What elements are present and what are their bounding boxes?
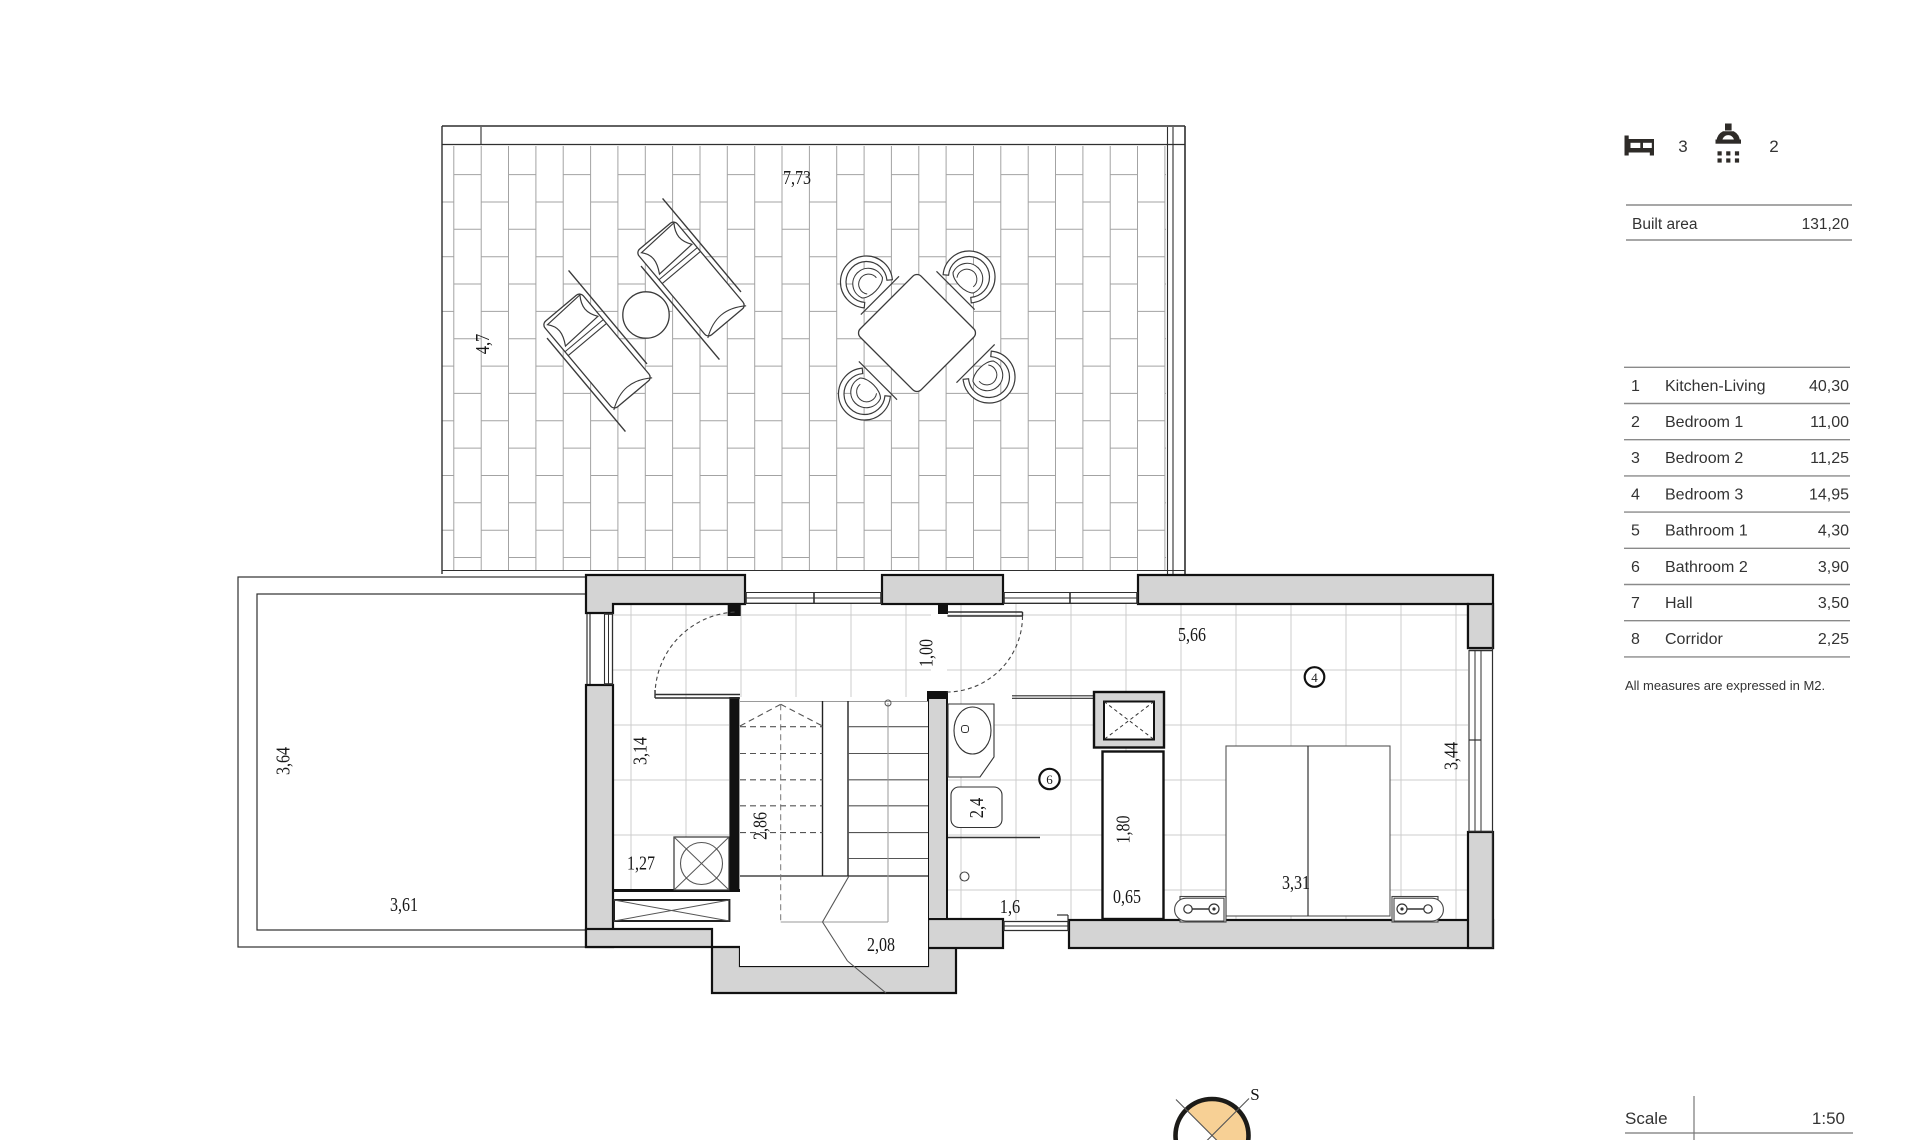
svg-text:11,25: 11,25	[1810, 450, 1849, 467]
svg-text:2,4: 2,4	[966, 798, 988, 819]
svg-text:Bathroom 1: Bathroom 1	[1665, 523, 1748, 540]
svg-text:7: 7	[1631, 595, 1640, 612]
svg-text:3,64: 3,64	[273, 747, 295, 775]
svg-text:4,7: 4,7	[472, 334, 494, 355]
svg-text:Kitchen-Living: Kitchen-Living	[1665, 378, 1766, 395]
svg-text:131,20: 131,20	[1802, 216, 1850, 233]
svg-text:2: 2	[1631, 414, 1640, 431]
svg-text:Corridor: Corridor	[1665, 631, 1723, 648]
svg-text:Bedroom 3: Bedroom 3	[1665, 486, 1743, 503]
svg-text:6: 6	[1631, 559, 1640, 576]
svg-text:Hall: Hall	[1665, 595, 1693, 612]
svg-text:3,50: 3,50	[1818, 595, 1849, 612]
svg-text:Scale: Scale	[1625, 1109, 1668, 1128]
svg-text:3,31: 3,31	[1282, 872, 1310, 894]
svg-text:3: 3	[1678, 137, 1687, 156]
svg-text:1,27: 1,27	[627, 853, 655, 875]
svg-text:1,6: 1,6	[1000, 896, 1021, 918]
svg-text:S: S	[1250, 1085, 1259, 1104]
svg-text:5,66: 5,66	[1178, 624, 1206, 646]
svg-text:5: 5	[1631, 523, 1640, 540]
svg-text:7,73: 7,73	[783, 167, 811, 189]
svg-text:3,61: 3,61	[390, 894, 418, 916]
svg-text:1,00: 1,00	[916, 639, 938, 667]
svg-text:3,14: 3,14	[630, 737, 652, 765]
svg-text:1: 1	[1631, 378, 1640, 395]
svg-text:4: 4	[1311, 670, 1318, 685]
svg-text:2,86: 2,86	[750, 812, 772, 840]
svg-text:1,80: 1,80	[1113, 816, 1135, 844]
svg-text:Built area: Built area	[1632, 216, 1698, 233]
svg-text:3,44: 3,44	[1441, 742, 1463, 770]
svg-text:1:50: 1:50	[1812, 1109, 1845, 1128]
svg-text:2,25: 2,25	[1818, 631, 1849, 648]
svg-text:2: 2	[1769, 137, 1778, 156]
svg-text:4: 4	[1631, 486, 1640, 503]
svg-text:3: 3	[1631, 450, 1640, 467]
svg-text:11,00: 11,00	[1810, 414, 1849, 431]
svg-text:Bedroom 2: Bedroom 2	[1665, 450, 1743, 467]
svg-text:2,08: 2,08	[867, 934, 895, 956]
svg-text:Bedroom 1: Bedroom 1	[1665, 414, 1743, 431]
svg-text:3,90: 3,90	[1818, 559, 1849, 576]
svg-text:4,30: 4,30	[1818, 523, 1849, 540]
svg-text:0,65: 0,65	[1113, 886, 1141, 908]
svg-text:40,30: 40,30	[1809, 378, 1849, 395]
svg-text:8: 8	[1631, 631, 1640, 648]
svg-text:6: 6	[1046, 772, 1053, 787]
svg-text:All measures are expressed in: All measures are expressed in M2.	[1625, 678, 1825, 693]
svg-text:14,95: 14,95	[1809, 486, 1849, 503]
svg-text:Bathroom 2: Bathroom 2	[1665, 559, 1748, 576]
